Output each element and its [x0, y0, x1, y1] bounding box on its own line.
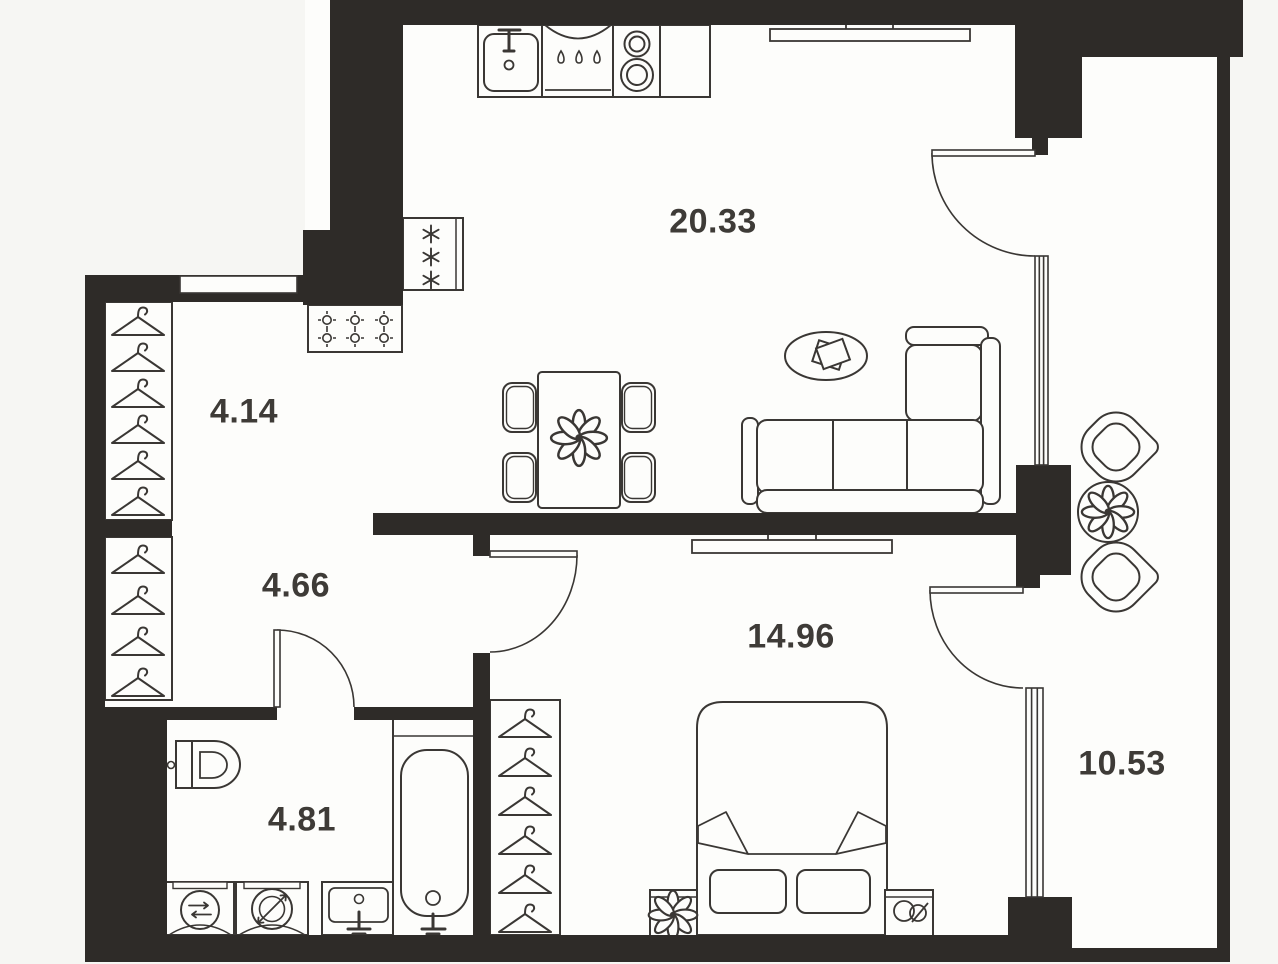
- bathtub: [393, 718, 475, 937]
- utility-shaft: [308, 305, 402, 352]
- hall-wardrobe: [105, 302, 172, 520]
- washing-machine: [166, 882, 234, 935]
- fridge: [403, 218, 463, 290]
- toilet: [168, 741, 241, 788]
- room-label-bedroom: 14.96: [747, 618, 835, 657]
- double-bed: [697, 702, 887, 935]
- room-label-balcony: 10.53: [1078, 745, 1166, 784]
- room-label-bathroom: 4.81: [268, 801, 336, 840]
- corridor-wardrobe: [105, 537, 172, 700]
- kitchen-sink: [484, 30, 538, 91]
- coffee-table: [785, 332, 867, 380]
- bedroom-wardrobe: [490, 700, 560, 935]
- floor-plan: 20.33 4.14 4.66 14.96 4.81 10.53: [0, 0, 1278, 964]
- plant-icon: [1082, 486, 1134, 538]
- room-label-corridor: 4.66: [262, 567, 330, 606]
- nightstand-plant: [649, 890, 698, 939]
- floor-plan-drawing: [0, 0, 1278, 964]
- entry-door: [180, 276, 297, 293]
- plant-icon: [649, 891, 698, 940]
- balcony-table-plant: [1078, 482, 1138, 542]
- nightstand-clock: [885, 890, 933, 937]
- room-label-entry-hall: 4.14: [210, 393, 278, 432]
- room-label-kitchen-living: 20.33: [669, 203, 757, 242]
- dining-table: [538, 372, 620, 508]
- plant-icon: [551, 410, 607, 466]
- wash-basin: [322, 882, 395, 935]
- dryer: [236, 882, 308, 935]
